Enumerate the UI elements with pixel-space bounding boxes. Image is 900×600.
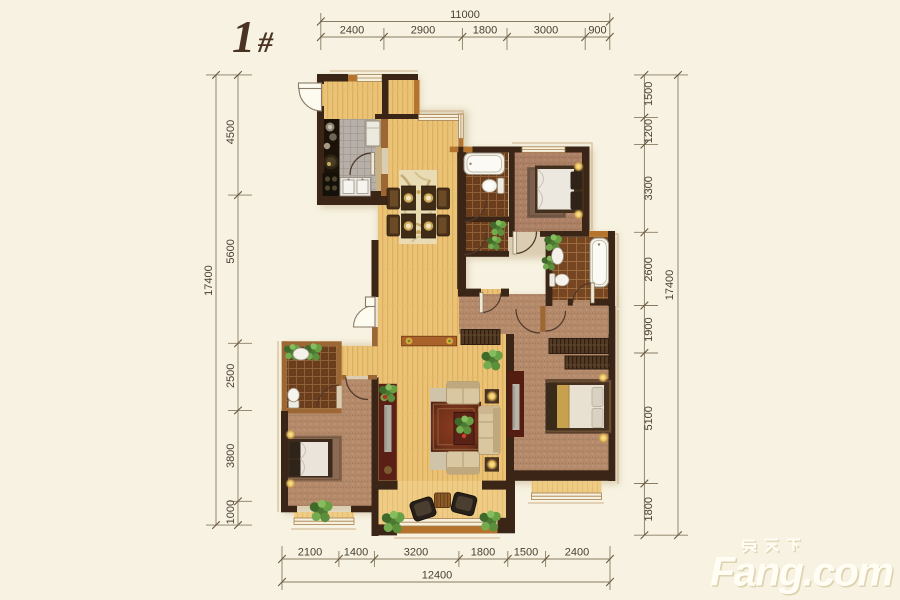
svg-text:1800: 1800 (471, 547, 495, 559)
svg-text:#: # (257, 26, 274, 59)
svg-text:1400: 1400 (344, 547, 368, 559)
svg-text:2900: 2900 (411, 25, 435, 37)
svg-text:1800: 1800 (643, 497, 655, 521)
svg-text:1500: 1500 (643, 82, 655, 106)
svg-text:2400: 2400 (565, 547, 589, 559)
svg-text:2400: 2400 (340, 25, 364, 37)
svg-text:4500: 4500 (225, 120, 237, 144)
svg-text:1800: 1800 (473, 25, 497, 37)
svg-text:3000: 3000 (534, 25, 558, 37)
svg-text:1500: 1500 (514, 547, 538, 559)
svg-text:Fang.com: Fang.com (710, 549, 893, 595)
svg-text:2100: 2100 (298, 547, 322, 559)
svg-text:1900: 1900 (643, 317, 655, 341)
svg-text:1: 1 (232, 11, 255, 62)
svg-text:17400: 17400 (664, 270, 676, 301)
svg-text:5600: 5600 (225, 239, 237, 263)
svg-text:1200: 1200 (643, 119, 655, 143)
svg-text:5100: 5100 (643, 406, 655, 430)
svg-text:2600: 2600 (643, 257, 655, 281)
svg-text:3200: 3200 (404, 547, 428, 559)
svg-text:3800: 3800 (225, 444, 237, 468)
svg-text:2500: 2500 (225, 364, 237, 388)
svg-text:3300: 3300 (643, 176, 655, 200)
svg-text:17400: 17400 (203, 265, 215, 296)
svg-text:1000: 1000 (225, 500, 237, 524)
svg-text:11000: 11000 (450, 9, 480, 21)
svg-text:900: 900 (588, 25, 606, 37)
svg-text:12400: 12400 (422, 570, 453, 582)
